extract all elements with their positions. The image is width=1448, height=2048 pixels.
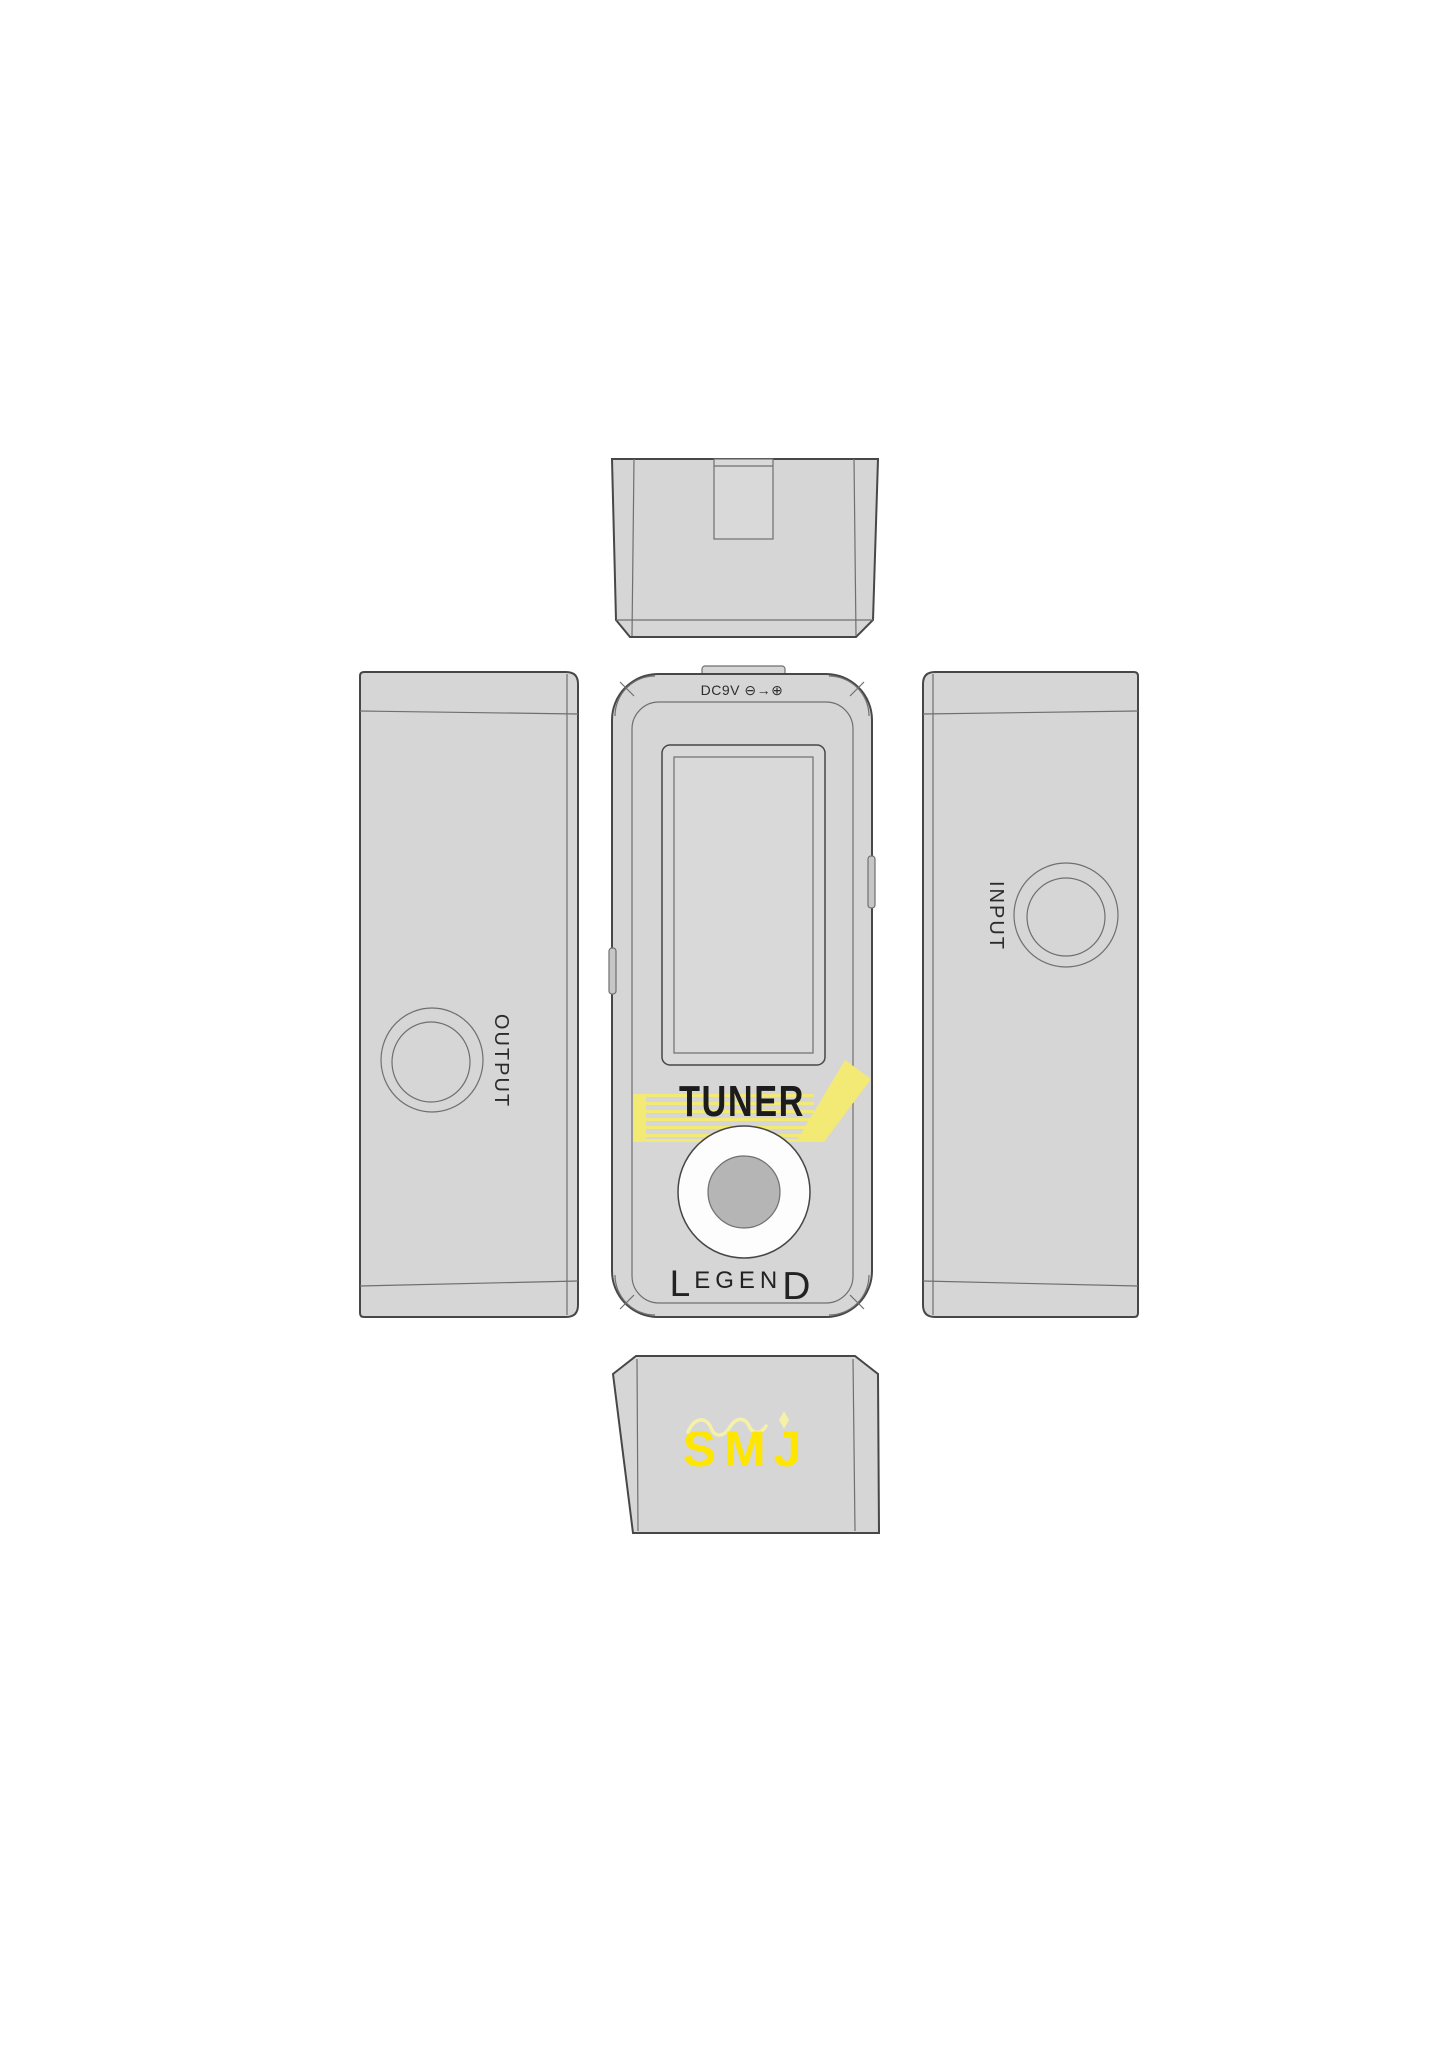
brand-label: LEGEND bbox=[612, 1264, 872, 1303]
left-side-view bbox=[360, 672, 578, 1317]
brand-label-middle: EGEN bbox=[694, 1267, 782, 1294]
dc-jack-recess bbox=[714, 459, 773, 539]
model-name-label: TUNER bbox=[641, 1080, 844, 1124]
brand-label-first: L bbox=[670, 1263, 695, 1304]
right-side-outline bbox=[923, 672, 1138, 1317]
right-side-view bbox=[923, 672, 1138, 1317]
diagram-linework bbox=[0, 0, 1448, 2048]
display-screen-bezel bbox=[662, 745, 825, 1065]
input-jack-nub bbox=[868, 856, 875, 908]
input-jack-label: INPUT bbox=[982, 846, 1006, 986]
output-jack-label: OUTPUT bbox=[487, 981, 511, 1141]
left-side-outline bbox=[360, 672, 578, 1317]
brand-label-last: D bbox=[782, 1265, 814, 1308]
pedal-orthographic-diagram: DC9V ⊖→⊕ TUNER LEGEND OUTPUT INPUT SMJ bbox=[0, 0, 1448, 2048]
footswitch-button bbox=[708, 1156, 780, 1228]
output-jack-nub bbox=[609, 948, 616, 994]
brand-logo: SMJ bbox=[613, 1424, 879, 1474]
top-view bbox=[612, 459, 878, 637]
power-spec-label: DC9V ⊖→⊕ bbox=[612, 683, 872, 697]
front-view bbox=[609, 666, 875, 1317]
